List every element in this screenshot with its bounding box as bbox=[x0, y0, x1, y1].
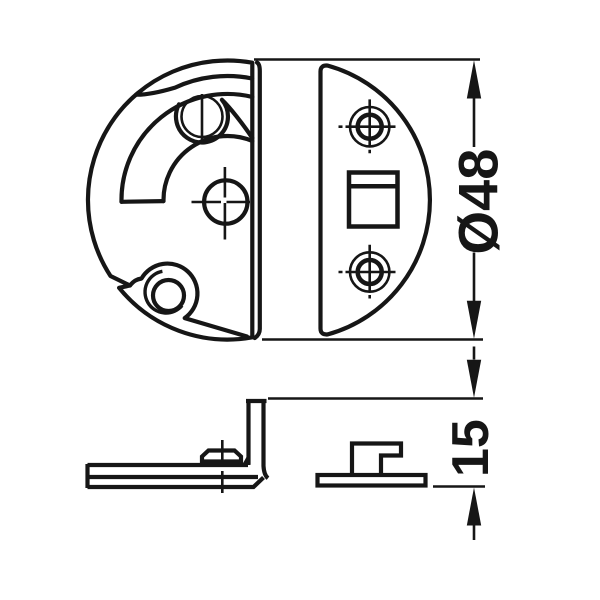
svg-text:Ø48: Ø48 bbox=[447, 149, 510, 255]
svg-text:15: 15 bbox=[442, 419, 500, 477]
